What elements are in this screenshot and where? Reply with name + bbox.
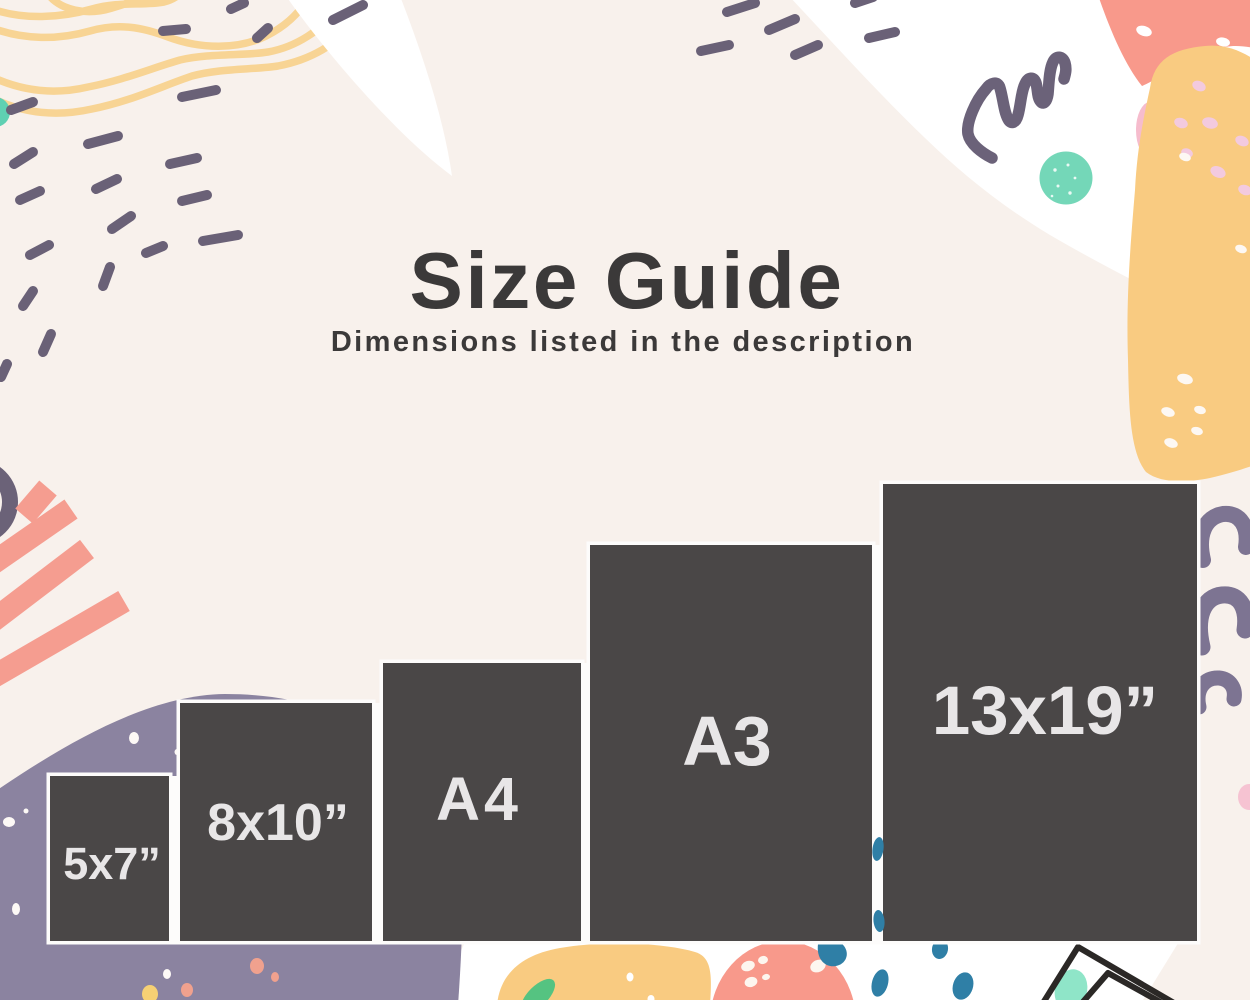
svg-text:Size Guide: Size Guide (410, 236, 845, 325)
svg-text:A4: A4 (436, 765, 522, 833)
svg-text:5x7”: 5x7” (63, 838, 161, 889)
svg-text:A3: A3 (682, 702, 771, 780)
svg-text:13x19”: 13x19” (932, 672, 1158, 749)
svg-text:8x10”: 8x10” (207, 794, 349, 852)
svg-text:Dimensions listed in the descr: Dimensions listed in the description (331, 326, 915, 358)
